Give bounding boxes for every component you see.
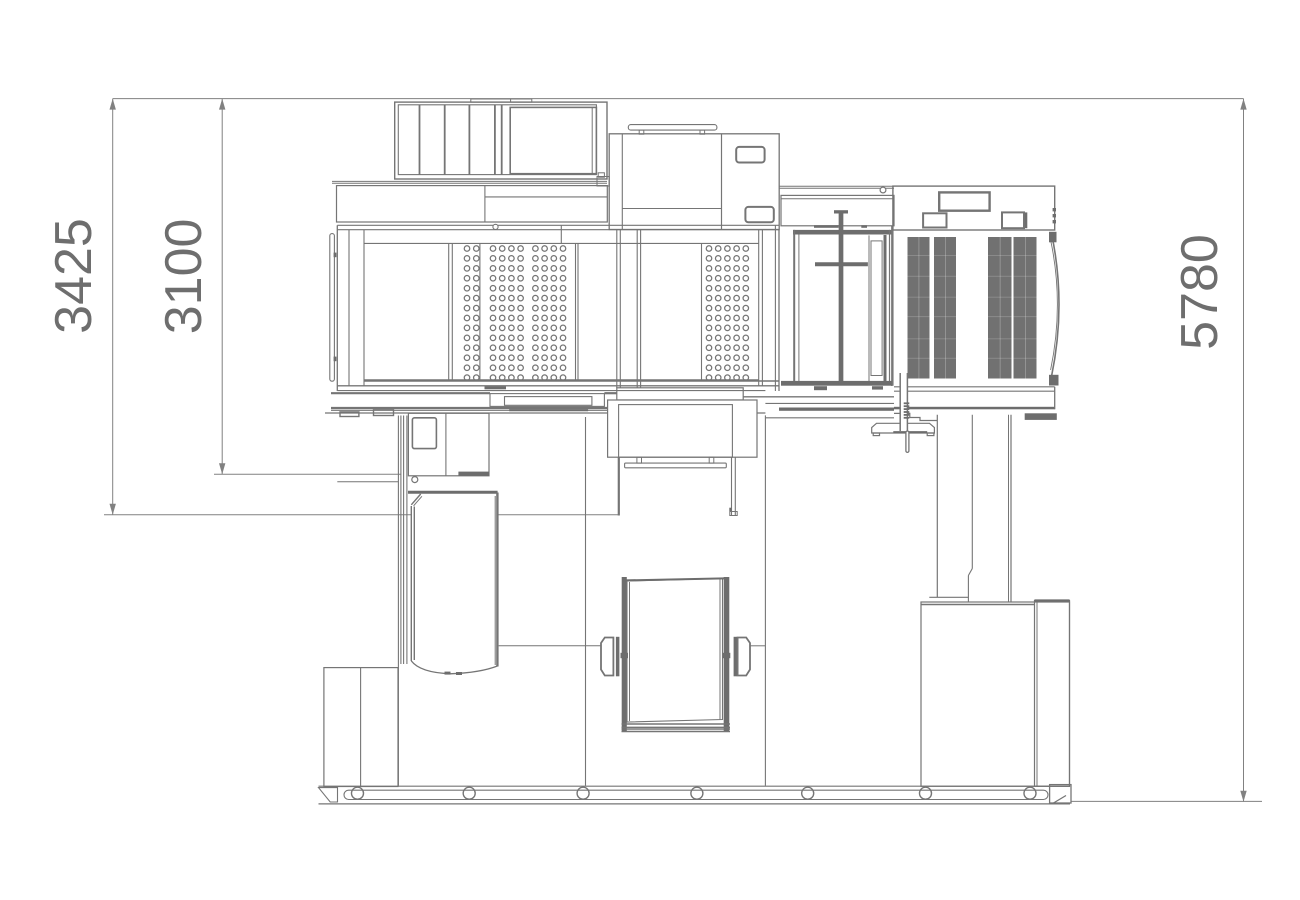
svg-text:3100: 3100 — [155, 219, 213, 335]
svg-text:5780: 5780 — [1171, 234, 1229, 350]
svg-text:3425: 3425 — [45, 218, 103, 334]
